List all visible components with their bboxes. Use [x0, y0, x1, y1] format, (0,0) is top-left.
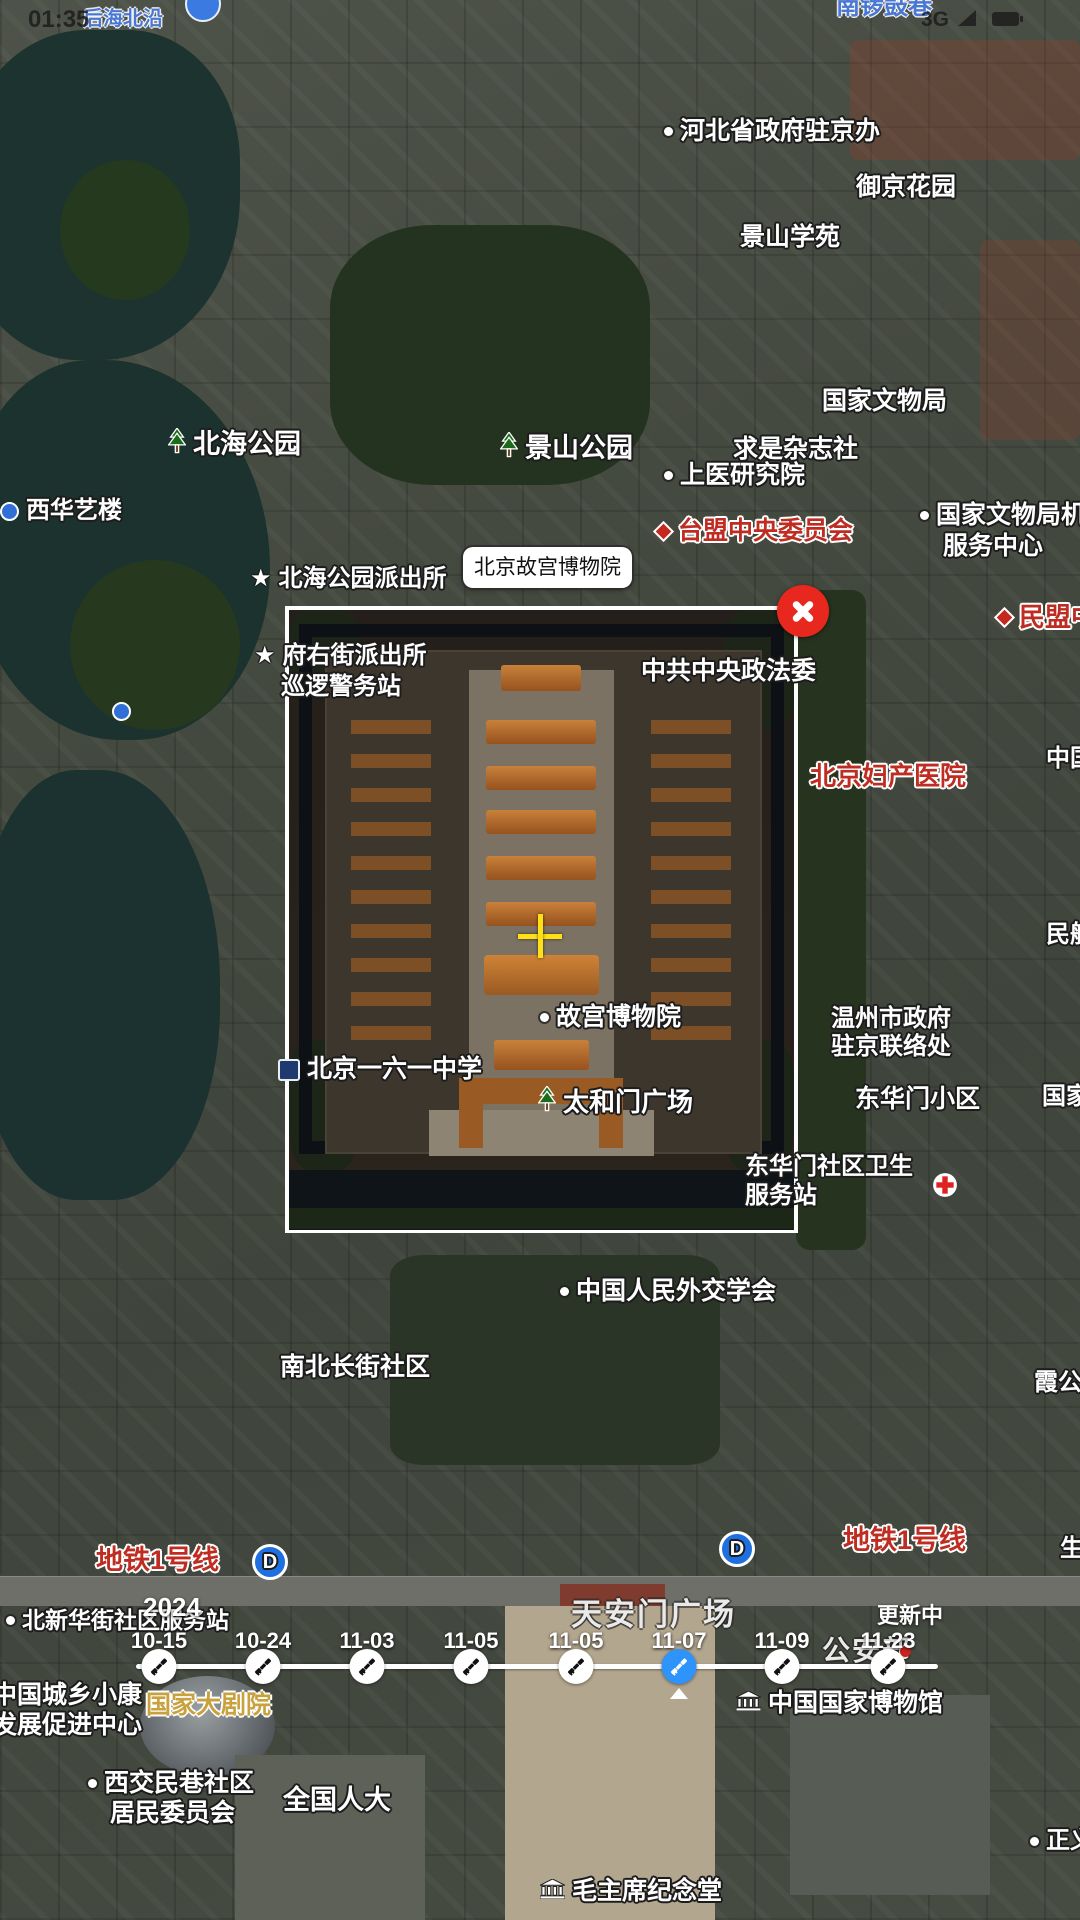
- map-label-text: 发展促进中心: [0, 1712, 142, 1740]
- map-label: 太和门广场: [538, 1086, 693, 1118]
- timeline-dot[interactable]: [350, 1649, 385, 1684]
- map-marker: [185, 0, 221, 22]
- island-beihai: [70, 560, 240, 730]
- timeline-dot[interactable]: [246, 1649, 281, 1684]
- selection-name-chip[interactable]: 北京故宫博物院: [463, 547, 632, 588]
- map-label: 民航: [1046, 922, 1080, 948]
- timeline-dot[interactable]: [142, 1649, 177, 1684]
- map-label: 国家文物局: [822, 388, 947, 416]
- map-label: 台盟中央委员会: [656, 518, 853, 546]
- map-label-text: 后海北沿: [83, 8, 163, 30]
- map-label: 河北省政府驻京办: [664, 118, 880, 146]
- timeline-dot[interactable]: [871, 1649, 906, 1684]
- map-label: 生: [1060, 1536, 1080, 1562]
- timeline-dot-selected[interactable]: [662, 1649, 697, 1684]
- map-label-text: 南北长街社区: [280, 1354, 430, 1382]
- map-label: 服务站: [745, 1183, 817, 1209]
- timeline-dot[interactable]: [765, 1649, 800, 1684]
- map-label-text: 国家文物局机关: [936, 502, 1080, 530]
- map-label-text: 地铁1号线: [96, 1546, 219, 1576]
- map-label-text: 北海公园: [193, 430, 301, 460]
- timeline-year: 2024: [143, 1592, 201, 1623]
- map-label-text: 全国人大: [283, 1786, 391, 1816]
- map-label: 后海北沿: [83, 8, 163, 30]
- roof-cluster-ne: [850, 40, 1080, 160]
- timeline-status: 更新中: [877, 1598, 943, 1630]
- map-label: 驻京联络处: [831, 1034, 951, 1060]
- map-label-text: 中国人民外交学会: [576, 1278, 776, 1306]
- national-museum-building: [790, 1695, 990, 1895]
- school-icon: [278, 1059, 300, 1081]
- map-label: 东华门社区卫生: [745, 1154, 913, 1180]
- map-label: 北海公园: [168, 428, 301, 461]
- tree-strip-east: [796, 590, 866, 1250]
- map-label-text: 东华门社区卫生: [745, 1154, 913, 1180]
- map-label: 正义: [1030, 1828, 1080, 1854]
- dot-icon: [664, 471, 673, 480]
- battery-icon: [992, 12, 1019, 26]
- map-label-text: 北海公园派出所: [279, 566, 447, 592]
- diamond-icon: [994, 607, 1015, 628]
- map-label: 中共中央政法委: [641, 658, 816, 686]
- map-label-text: 霞公府: [1034, 1370, 1080, 1396]
- map-label: 故宫博物院: [540, 1004, 681, 1032]
- star-icon: ★: [250, 566, 272, 592]
- timeline-dot[interactable]: [454, 1649, 489, 1684]
- map-label: 西交民巷社区: [88, 1770, 254, 1798]
- dot-icon: [540, 1013, 549, 1022]
- map-label: 西华艺楼: [0, 498, 122, 524]
- map-label: 毛主席纪念堂: [540, 1878, 722, 1906]
- map-label: 国家文物局机关: [920, 502, 1080, 530]
- map-label: 南锣鼓巷: [836, 0, 932, 20]
- map-label-text: 东华门小区: [855, 1086, 980, 1114]
- map-label: 中国人民外交学会: [560, 1278, 776, 1306]
- map-label-text: 巡逻警务站: [281, 674, 401, 700]
- map-marker: D: [719, 1531, 755, 1567]
- map-label-text: 服务中心: [943, 533, 1043, 561]
- roof-cluster-e: [980, 240, 1080, 440]
- bluecircle-icon: [185, 0, 221, 22]
- satellite-map-screen: 后海北沿南锣鼓巷河北省政府驻京办御京花园景山学苑国家文物局求是杂志社上医研究院台…: [0, 0, 1080, 1920]
- map-label: 求是杂志社: [733, 436, 858, 464]
- map-label: 民盟中央: [997, 603, 1080, 632]
- timeline-dot[interactable]: [559, 1649, 594, 1684]
- map-label-text: 南锣鼓巷: [836, 0, 932, 20]
- map-label-text: 上医研究院: [680, 462, 805, 490]
- selected-marker-triangle: [670, 1688, 688, 1699]
- map-label-text: 居民委员会: [110, 1800, 235, 1828]
- dot-icon: [88, 1779, 97, 1788]
- great-hall-building: [235, 1755, 425, 1920]
- map-label: 景山学苑: [740, 224, 840, 252]
- map-label-text: 国家文物局: [822, 388, 947, 416]
- map-label: 霞公府: [1034, 1370, 1080, 1396]
- map-label-text: 生: [1060, 1536, 1080, 1562]
- map-marker: D: [252, 1544, 288, 1580]
- map-label: 南北长街社区: [280, 1354, 430, 1382]
- tree-icon: [500, 432, 518, 465]
- map-marker: [112, 702, 131, 721]
- map-label: 巡逻警务站: [281, 674, 401, 700]
- tree-icon: [538, 1086, 556, 1118]
- map-label: 北京妇产医院: [810, 762, 966, 791]
- diamond-icon: [653, 521, 674, 542]
- history-timeline: 2024 更新中 10-1510-2411-0311-0511-0511-071…: [0, 1590, 1080, 1705]
- map-label-text: 民盟中央: [1019, 603, 1080, 632]
- map-label: 东华门小区: [855, 1086, 980, 1114]
- map-label: 地铁1号线: [843, 1526, 966, 1556]
- map-label-text: 求是杂志社: [733, 436, 858, 464]
- map-label: 温州市政府: [831, 1006, 951, 1032]
- map-label: 中国: [1046, 746, 1080, 772]
- signal-icon: [958, 10, 976, 26]
- map-label-text: 太和门广场: [563, 1088, 693, 1117]
- metro-icon: D: [719, 1531, 755, 1567]
- dot-icon: [664, 127, 673, 136]
- map-label-text: 国家: [1042, 1084, 1080, 1110]
- map-marker: [932, 1172, 958, 1204]
- map-label-text: 北京妇产医院: [810, 762, 966, 791]
- map-label-text: 正义: [1046, 1828, 1080, 1854]
- map-label-text: 府右街派出所: [283, 643, 427, 669]
- map-label: 上医研究院: [664, 462, 805, 490]
- map-label: 御京花园: [856, 174, 956, 202]
- metro-icon: D: [252, 1544, 288, 1580]
- map-label-text: 西华艺楼: [26, 498, 122, 524]
- map-label: ★府右街派出所: [254, 643, 427, 669]
- star-icon: ★: [254, 643, 276, 669]
- museum-icon: [540, 1878, 565, 1906]
- map-label: 全国人大: [283, 1786, 391, 1816]
- map-label: 发展促进中心: [0, 1712, 142, 1740]
- dot-icon: [920, 511, 929, 520]
- status-bar-time: 01:35: [28, 6, 89, 34]
- map-label: 北京一六一中学: [278, 1056, 482, 1084]
- map-label-text: 河北省政府驻京办: [680, 118, 880, 146]
- map-label: 居民委员会: [110, 1800, 235, 1828]
- map-label-text: 西交民巷社区: [104, 1770, 254, 1798]
- tree-icon: [168, 428, 186, 461]
- map-label: 地铁1号线: [96, 1546, 219, 1576]
- island-north: [60, 160, 190, 300]
- map-label-text: 民航: [1046, 922, 1080, 948]
- close-button[interactable]: [777, 585, 829, 637]
- map-label-text: 北京一六一中学: [307, 1056, 482, 1084]
- dot-icon: [560, 1287, 569, 1296]
- map-label-text: 景山公园: [525, 434, 633, 464]
- map-label: ★北海公园派出所: [250, 566, 447, 592]
- map-label-text: 故宫博物院: [556, 1004, 681, 1032]
- bluedot-icon: [112, 702, 131, 721]
- map-label: 景山公园: [500, 432, 633, 465]
- map-label: 服务中心: [943, 533, 1043, 561]
- map-label-text: 驻京联络处: [831, 1034, 951, 1060]
- map-label-text: 御京花园: [856, 174, 956, 202]
- map-label-text: 服务站: [745, 1183, 817, 1209]
- dot-icon: [1030, 1837, 1039, 1846]
- map-label-text: 景山学苑: [740, 224, 840, 252]
- map-label-text: 温州市政府: [831, 1006, 951, 1032]
- status-bar-network: 3G: [921, 8, 949, 32]
- map-label-text: 台盟中央委员会: [678, 518, 853, 546]
- map-label-text: 中共中央政法委: [641, 658, 816, 686]
- cross-icon: [932, 1172, 958, 1204]
- crosshair-icon: [518, 914, 562, 958]
- bluedot-icon: [0, 502, 19, 521]
- map-label-text: 地铁1号线: [843, 1526, 966, 1556]
- map-label: 国家: [1042, 1084, 1080, 1110]
- map-label-text: 毛主席纪念堂: [572, 1878, 722, 1906]
- map-label-text: 中国: [1046, 746, 1080, 772]
